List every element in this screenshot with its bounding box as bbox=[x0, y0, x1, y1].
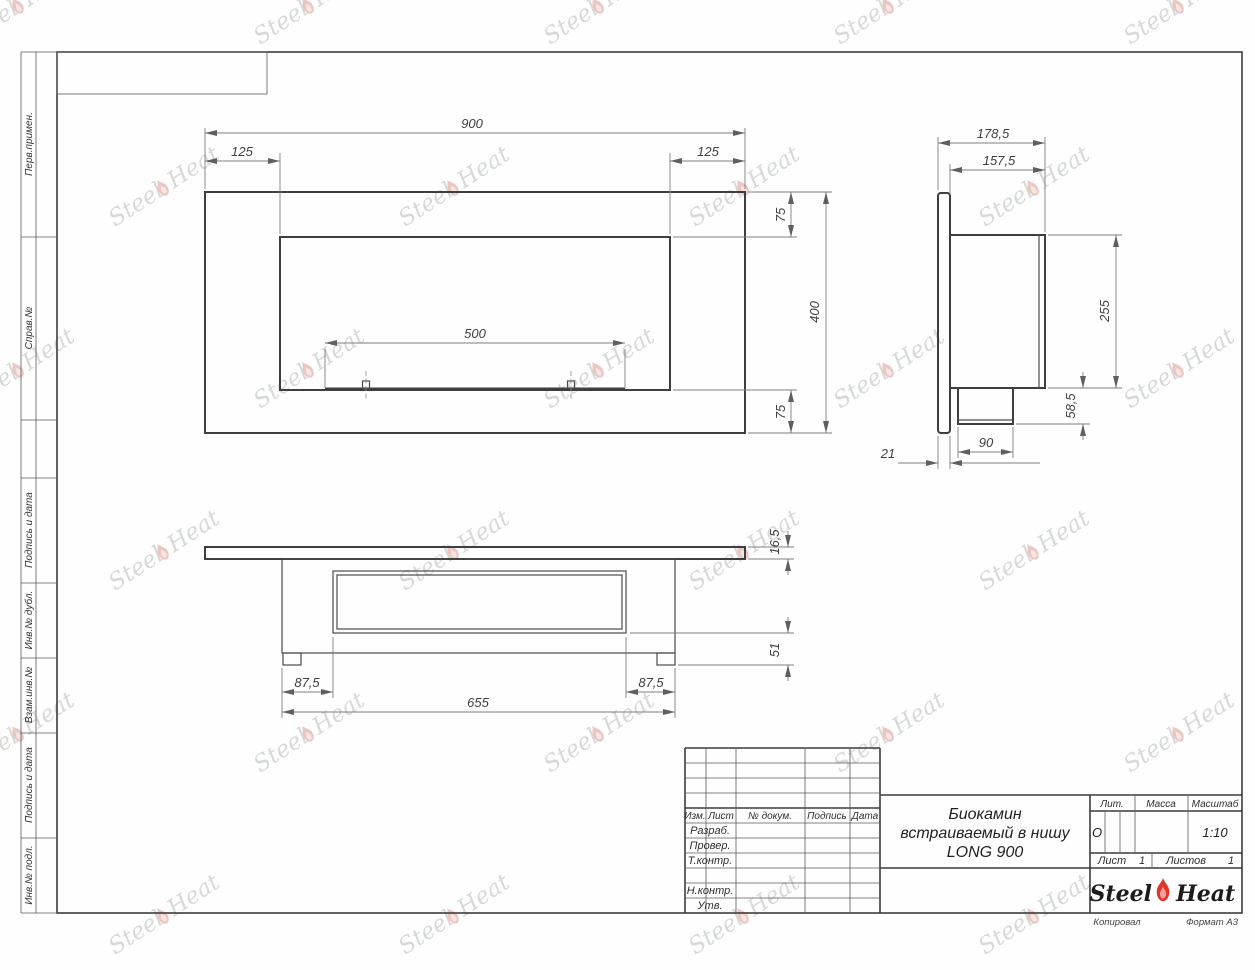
tb-sheet-number: 1 bbox=[1139, 855, 1145, 867]
dim-front-bottom-margin: 75 bbox=[673, 390, 797, 433]
dim-side-body-height: 255 bbox=[1048, 235, 1122, 388]
watermark-word-heat: Heat bbox=[1177, 323, 1240, 377]
tb-lit-header: Лит. bbox=[1099, 799, 1123, 810]
tb-sheets-total: 1 bbox=[1228, 855, 1234, 867]
watermark: SteelHeat bbox=[1119, 323, 1240, 414]
watermark: SteelHeat bbox=[0, 0, 80, 50]
tb-lit-value: О bbox=[1092, 825, 1102, 840]
dim-front-top-margin-label: 75 bbox=[773, 207, 788, 222]
dim-front-bottom-margin-label: 75 bbox=[773, 404, 788, 419]
tb-scale-header: Масштаб bbox=[1192, 798, 1239, 810]
watermark: SteelHeat bbox=[394, 869, 515, 960]
watermark-word-heat: Heat bbox=[452, 869, 515, 923]
bottom-view-channel-outer bbox=[333, 571, 626, 633]
watermark-word-heat: Heat bbox=[597, 323, 660, 377]
watermark-word-heat: Heat bbox=[162, 141, 225, 195]
document-title-line1: Биокамин bbox=[948, 806, 1022, 823]
document-title-line3: LONG 900 bbox=[947, 844, 1024, 861]
watermark: SteelHeat bbox=[684, 869, 805, 960]
dim-bottom-inner-depth-label: 51 bbox=[767, 643, 782, 657]
watermark-word-heat: Heat bbox=[597, 687, 660, 741]
footer-copied-by: Копировал bbox=[1093, 917, 1141, 928]
tb-sheets-label: Листов bbox=[1165, 855, 1206, 867]
tb-col-list: Лист bbox=[707, 811, 734, 822]
dim-bottom-body-width-label: 655 bbox=[467, 695, 489, 710]
tb-row-tkontr: Т.контр. bbox=[688, 855, 732, 867]
watermark: SteelHeat bbox=[974, 869, 1095, 960]
margin-stamp-labels: Перв.примен. Справ.№ Подпись и дата Инв.… bbox=[23, 112, 35, 904]
margin-label-inv-podl: Инв.№ подл. bbox=[24, 845, 35, 904]
document-title-line2: встраиваемый в нишу bbox=[900, 825, 1070, 842]
dim-side-box-height: 58,5 bbox=[1016, 372, 1090, 440]
dim-side-flange-thickness-label: 21 bbox=[880, 446, 895, 461]
dim-bottom-margin-left-label: 87,5 bbox=[294, 675, 320, 690]
watermark: SteelHeat bbox=[104, 141, 225, 232]
drawing-sheet: SteelHeatSteelHeatSteelHeatSteelHeatStee… bbox=[0, 0, 1255, 970]
logo-word-steel: Steel bbox=[1090, 881, 1152, 907]
dim-side-depth-body-label: 157,5 bbox=[983, 153, 1016, 168]
side-view-burner-box bbox=[958, 388, 1013, 424]
watermark: SteelHeat bbox=[974, 505, 1095, 596]
logo-word-heat: Heat bbox=[1175, 881, 1235, 907]
tb-col-sign: Подпись bbox=[807, 811, 847, 822]
watermark-word-heat: Heat bbox=[1032, 869, 1095, 923]
dim-front-burner-span-label: 500 bbox=[464, 326, 486, 341]
watermark: SteelHeat bbox=[104, 505, 225, 596]
watermark: SteelHeat bbox=[0, 323, 80, 414]
tb-col-izm: Изм. bbox=[684, 811, 705, 822]
margin-label-perv-primen: Перв.примен. bbox=[24, 112, 35, 176]
dim-side-box-width-label: 90 bbox=[979, 435, 994, 450]
dim-side-box-width: 90 bbox=[958, 427, 1013, 458]
side-view-flange bbox=[938, 193, 950, 433]
bottom-view-foot-right bbox=[657, 653, 675, 665]
bottom-view: 16,5 51 87,5 87,5 655 bbox=[205, 529, 794, 718]
margin-label-podpis-data-2: Подпись и дата bbox=[24, 747, 35, 823]
watermark-word-heat: Heat bbox=[452, 141, 515, 195]
dim-bottom-margin-right-label: 87,5 bbox=[638, 675, 664, 690]
flame-icon bbox=[1157, 878, 1170, 901]
dim-side-body-height-label: 255 bbox=[1097, 299, 1112, 322]
tb-mass-header: Масса bbox=[1146, 799, 1176, 810]
tb-sheet-label: Лист bbox=[1097, 855, 1126, 867]
watermark-word-heat: Heat bbox=[597, 0, 660, 12]
watermark-word-heat: Heat bbox=[17, 0, 80, 12]
watermark: SteelHeat bbox=[249, 323, 370, 414]
tb-row-prover: Провер. bbox=[690, 840, 731, 852]
watermark: SteelHeat bbox=[249, 0, 370, 50]
watermark-word-heat: Heat bbox=[452, 505, 515, 559]
dim-side-box-height-label: 58,5 bbox=[1063, 393, 1078, 419]
watermark-word-heat: Heat bbox=[742, 869, 805, 923]
watermark-word-heat: Heat bbox=[162, 505, 225, 559]
watermark: SteelHeat bbox=[829, 0, 950, 50]
watermark-word-heat: Heat bbox=[1177, 687, 1240, 741]
steelheat-logo: Steel Heat bbox=[1090, 878, 1236, 907]
watermark-word-heat: Heat bbox=[162, 869, 225, 923]
top-left-stamp-box bbox=[57, 52, 267, 94]
burner-mark-left bbox=[363, 371, 370, 399]
watermark: SteelHeat bbox=[104, 869, 225, 960]
watermark-word-heat: Heat bbox=[307, 687, 370, 741]
footer-format: Формат А3 bbox=[1186, 917, 1239, 928]
tb-row-razrab: Разраб. bbox=[690, 825, 730, 837]
dim-bottom-inner-depth: 51 bbox=[630, 617, 794, 681]
dim-side-flange-thickness: 21 bbox=[880, 436, 1040, 469]
side-view: 178,5 157,5 255 58,5 90 bbox=[880, 126, 1122, 469]
tb-row-utv: Утв. bbox=[697, 900, 723, 912]
watermark-word-heat: Heat bbox=[887, 0, 950, 12]
bottom-view-channel-inner bbox=[337, 575, 622, 629]
watermark-word-heat: Heat bbox=[1032, 141, 1095, 195]
watermark-word-heat: Heat bbox=[307, 0, 370, 12]
dim-front-height: 400 bbox=[748, 192, 832, 433]
margin-label-sprav-no: Справ.№ bbox=[24, 306, 35, 349]
dim-front-offset-right-label: 125 bbox=[697, 144, 719, 159]
dim-front-offset-left-label: 125 bbox=[231, 144, 253, 159]
watermark-layer: SteelHeatSteelHeatSteelHeatSteelHeatStee… bbox=[0, 0, 1255, 960]
dim-side-depth-total-label: 178,5 bbox=[977, 126, 1010, 141]
watermark: SteelHeat bbox=[539, 687, 660, 778]
watermark: SteelHeat bbox=[829, 687, 950, 778]
bottom-view-foot-left bbox=[283, 653, 301, 665]
dim-bottom-plate-thickness-label: 16,5 bbox=[767, 529, 782, 555]
watermark: SteelHeat bbox=[0, 687, 80, 778]
watermark-word-heat: Heat bbox=[742, 141, 805, 195]
margin-label-podpis-data-1: Подпись и дата bbox=[24, 492, 35, 568]
watermark: SteelHeat bbox=[1119, 687, 1240, 778]
side-view-body bbox=[950, 235, 1045, 388]
watermark: SteelHeat bbox=[1119, 0, 1240, 50]
dim-front-width-label: 900 bbox=[461, 116, 483, 131]
watermark: SteelHeat bbox=[539, 0, 660, 50]
watermark: SteelHeat bbox=[829, 323, 950, 414]
tb-col-doc: № докум. bbox=[748, 811, 792, 822]
tb-row-nkontr: Н.контр. bbox=[687, 885, 734, 897]
watermark: SteelHeat bbox=[539, 323, 660, 414]
watermark: SteelHeat bbox=[249, 687, 370, 778]
tb-scale-value: 1:10 bbox=[1202, 825, 1228, 840]
watermark-word-heat: Heat bbox=[1032, 505, 1095, 559]
margin-label-inv-dubl: Инв.№ дубл. bbox=[23, 591, 35, 650]
margin-label-vzam-inv: Взам.инв.№ bbox=[24, 667, 35, 723]
bottom-view-body bbox=[282, 559, 675, 653]
watermark-word-heat: Heat bbox=[887, 687, 950, 741]
watermark-word-heat: Heat bbox=[1177, 0, 1240, 12]
dim-front-height-label: 400 bbox=[807, 300, 822, 322]
watermark: SteelHeat bbox=[394, 505, 515, 596]
watermark-word-heat: Heat bbox=[887, 323, 950, 377]
watermark-word-heat: Heat bbox=[307, 323, 370, 377]
tb-col-date: Дата bbox=[851, 811, 879, 822]
watermark: SteelHeat bbox=[394, 141, 515, 232]
